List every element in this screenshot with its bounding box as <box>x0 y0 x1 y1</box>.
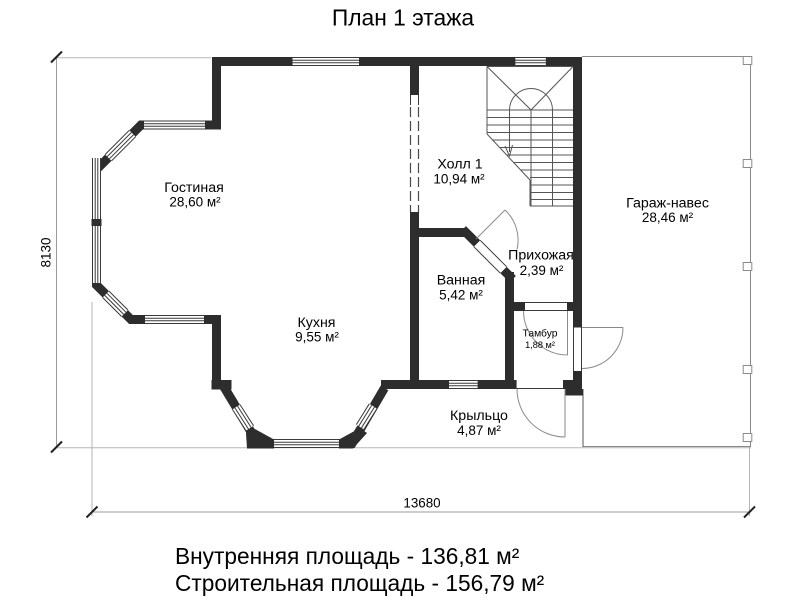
svg-text:4,87 м²: 4,87 м² <box>457 423 501 438</box>
svg-text:Холл 1: Холл 1 <box>437 157 482 173</box>
svg-text:28,46 м²: 28,46 м² <box>642 210 694 225</box>
svg-text:10,94 м²: 10,94 м² <box>433 172 485 187</box>
svg-text:Прихожая: Прихожая <box>508 248 574 264</box>
svg-text:Тамбур: Тамбур <box>523 328 558 340</box>
svg-text:Строительная площадь - 156,79: Строительная площадь - 156,79 м² <box>175 570 545 596</box>
svg-text:2,39 м²: 2,39 м² <box>520 263 564 278</box>
svg-text:1,88 м²: 1,88 м² <box>525 340 555 350</box>
svg-text:Ванная: Ванная <box>437 273 486 289</box>
svg-text:Внутренняя площадь - 136,81 м²: Внутренняя площадь - 136,81 м² <box>175 543 520 569</box>
svg-text:28,60 м²: 28,60 м² <box>169 195 221 210</box>
svg-text:9,55 м²: 9,55 м² <box>295 330 339 345</box>
svg-text:5,42 м²: 5,42 м² <box>439 288 483 303</box>
svg-text:8130: 8130 <box>39 237 54 267</box>
svg-text:План 1 этажа: План 1 этажа <box>332 5 475 31</box>
svg-text:13680: 13680 <box>403 496 440 511</box>
svg-text:Крыльцо: Крыльцо <box>450 408 508 424</box>
